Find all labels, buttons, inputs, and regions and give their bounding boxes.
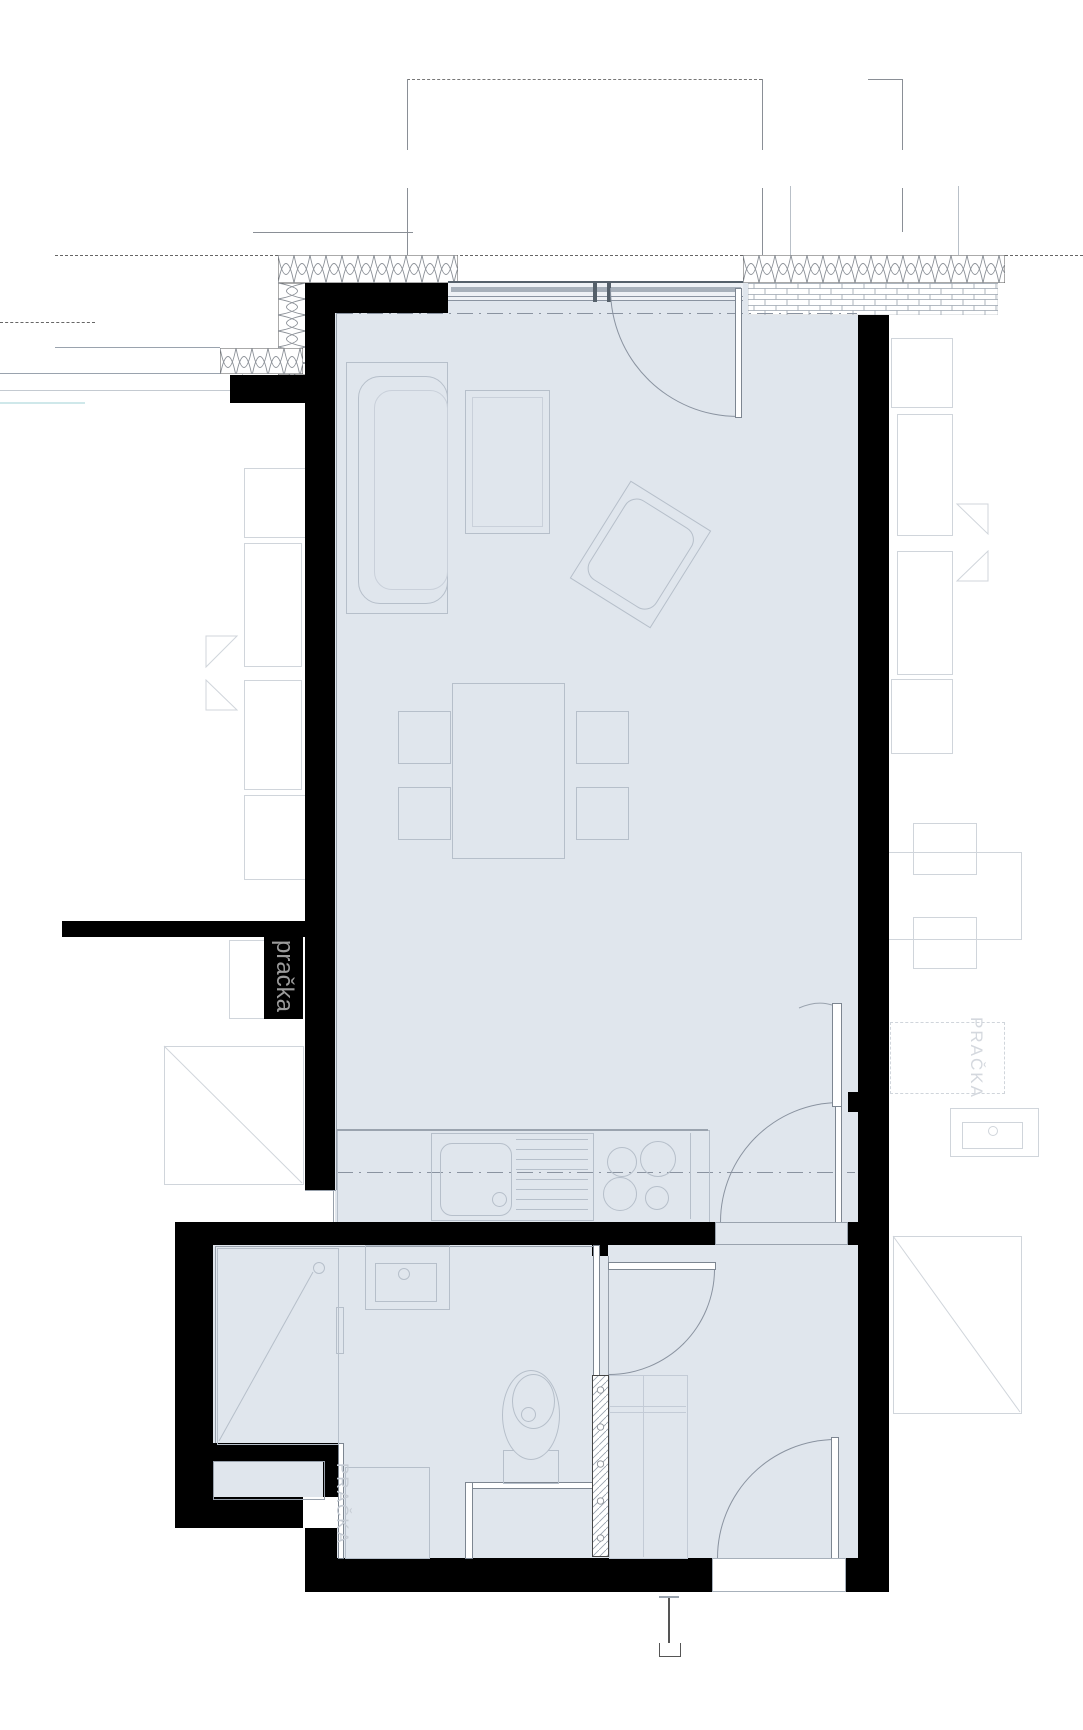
wardrobe-division [643,1375,644,1557]
bathroom-wall-line [215,1246,216,1443]
niche-outline [213,1461,325,1500]
counter-edge [337,1129,708,1131]
slab-line [0,390,243,391]
neighbor-faucet [988,1126,998,1136]
entrance-threshold [712,1558,846,1592]
washer-label-bath: PRAČKA [332,1463,352,1545]
wardrobe-shelf [609,1412,686,1413]
door-leaf [608,1262,716,1270]
neighbor-furniture [244,468,308,538]
sink-drain [492,1192,507,1207]
neighbor-furniture [897,551,953,675]
toilet-bowl [512,1374,555,1429]
chair-icon [576,787,629,840]
balcony-divider [790,186,791,256]
parapet-line [253,232,413,233]
cooktop-icon [645,1186,669,1210]
neighbor-furniture [891,338,953,408]
door-leaf [835,1102,842,1224]
washer-label: pračka [270,940,298,1012]
cooktop-icon [603,1177,637,1211]
wardrobe-shelf [609,1406,686,1407]
door-leaf [832,1003,842,1107]
slab-line [0,402,85,404]
section-marker-icon [668,1598,670,1643]
chair-icon [398,711,451,764]
neighbor-washing-machine [229,940,268,1019]
neighbor-balcony [902,79,903,150]
neighbor-washer-label: PRAČKA [966,1017,986,1099]
chair-icon [576,711,629,764]
duct-shaft-icon [592,1375,609,1557]
neighbor-furniture [244,795,307,880]
coffee-table-icon [472,397,543,527]
wall-segment [848,1222,858,1245]
neighbor-furniture [891,679,953,754]
insulation-hatch-icon [278,255,458,283]
wardrobe-icon [609,1375,688,1559]
shower-head [313,1262,325,1274]
door-leaf [735,288,742,418]
door-leaf [831,1437,839,1560]
wall-segment [177,1222,715,1245]
balcony-post [762,188,763,256]
neighbor-chair [913,917,977,969]
wall-face-line [333,1190,334,1222]
counter-division [690,1133,691,1219]
sofa-cushion [374,390,448,590]
balcony-outline-icon [407,79,762,80]
neighbor-furniture [897,414,953,536]
door-threshold [715,1222,848,1245]
insulation-hatch-icon [743,255,1005,283]
washing-machine-icon [345,1467,430,1559]
partition-wall [593,1245,600,1377]
washing-machine-icon: pračka [264,933,303,1019]
neighbor-shower [164,1046,304,1185]
wall-face-line [305,1190,336,1191]
balcony-divider [958,186,959,256]
axis-line [337,313,857,314]
neighbor-balcony [902,188,903,232]
wall-segment [858,315,889,1592]
shower-icon [217,1248,339,1445]
sink-drainboard [516,1139,588,1215]
slab-line [0,373,222,374]
brick-hatch-icon [748,283,998,315]
floor-plan: PRAČKA [0,0,1083,1730]
neighbor-furniture [244,543,302,667]
insulation-hatch-icon [220,348,303,374]
door-jamb [465,1482,473,1559]
wall-segment [305,283,335,1190]
neighbor-shower [893,1236,1022,1414]
balcony-post [762,79,763,150]
shower-door [336,1307,344,1354]
faucet [398,1268,410,1280]
exterior-void [175,1528,305,1558]
wall-segment [210,1443,338,1462]
section-marker-icon [659,1643,681,1657]
window-mullion [593,281,597,302]
cooktop-icon [607,1147,637,1177]
slab-line [55,347,220,348]
neighbor-balcony [868,79,902,80]
neighbor-washing-machine: PRAČKA [890,1022,1005,1094]
balcony-post [407,79,408,150]
neighbor-furniture [244,680,302,790]
wall-segment [230,375,307,403]
dashdot-line [0,322,95,323]
neighbor-chair [913,823,977,875]
dining-table-icon [452,683,565,859]
toilet-flush [521,1407,536,1422]
wall-face-line [336,313,337,1190]
wall-segment [175,1222,213,1528]
wall-segment [337,1558,712,1592]
wall-segment [175,1497,303,1528]
door-jamb [848,1092,858,1112]
cooktop-icon [640,1141,676,1177]
chair-icon [398,787,451,840]
